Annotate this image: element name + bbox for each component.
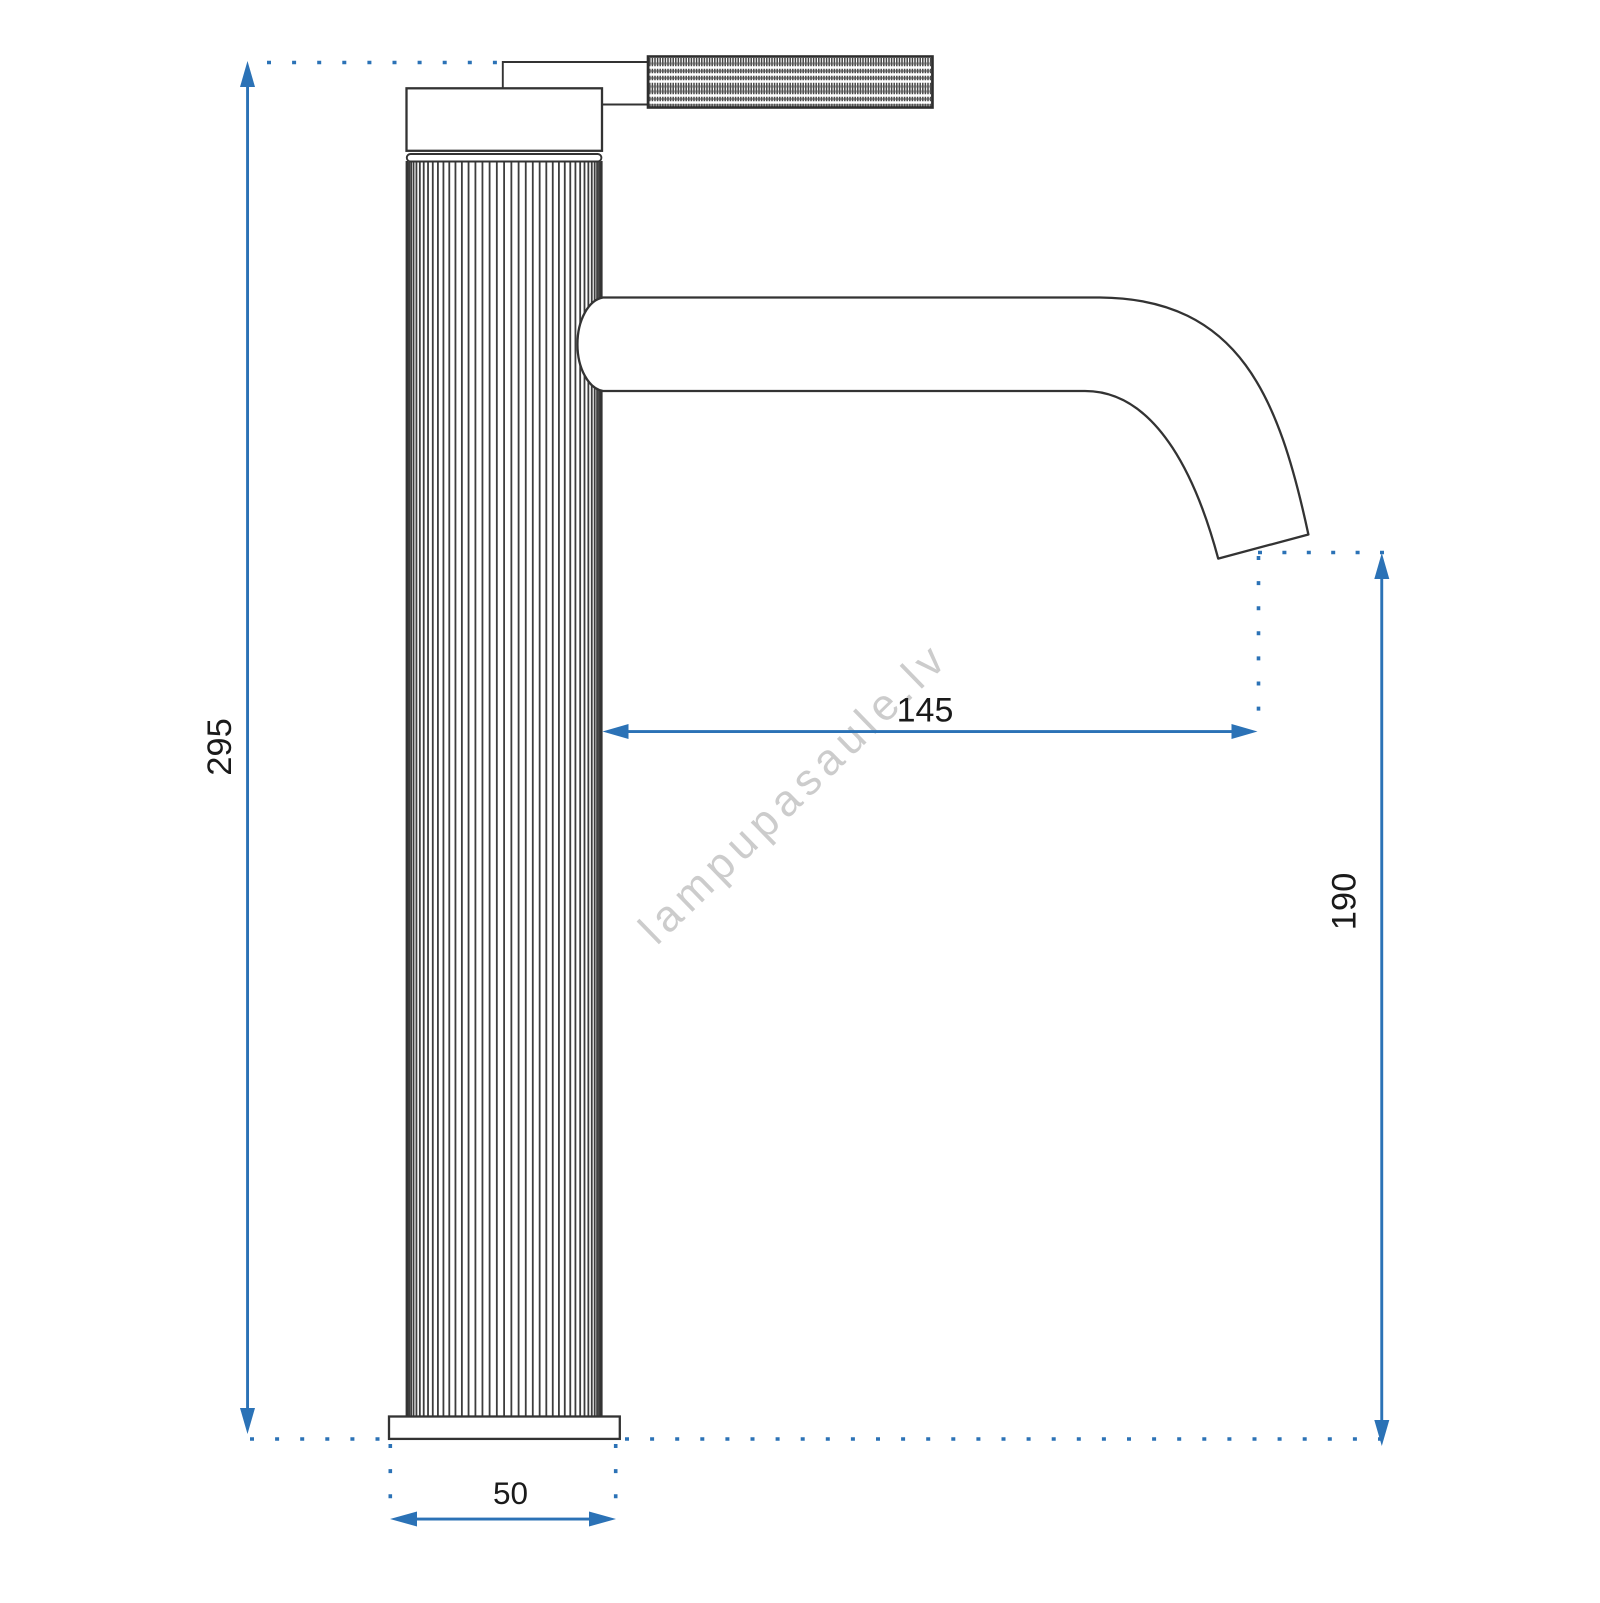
svg-text:295: 295 bbox=[201, 718, 239, 776]
svg-text:50: 50 bbox=[493, 1475, 528, 1511]
svg-text:145: 145 bbox=[897, 691, 954, 729]
svg-text:190: 190 bbox=[1326, 873, 1364, 931]
